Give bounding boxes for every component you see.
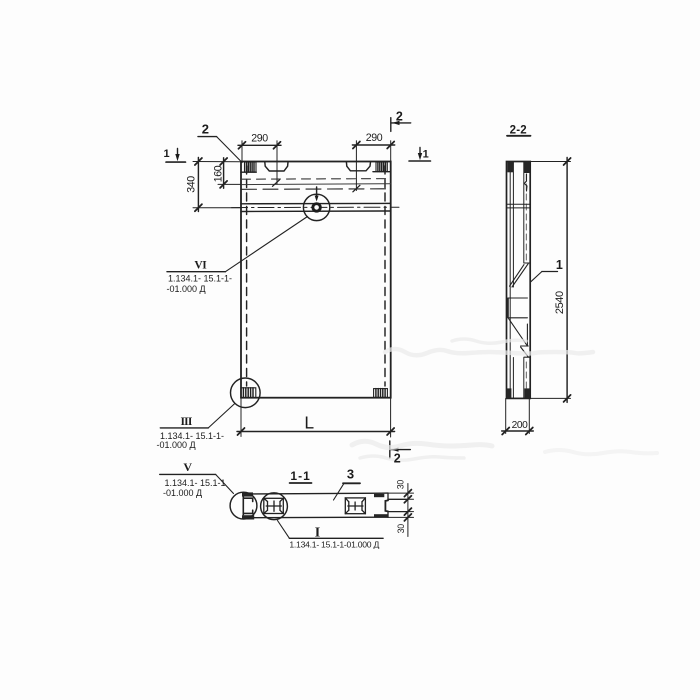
svg-text:2-2: 2-2 (510, 124, 527, 136)
svg-text:-01.000 Д: -01.000 Д (157, 440, 196, 450)
svg-text:290: 290 (251, 133, 268, 145)
svg-text:2540: 2540 (554, 291, 566, 314)
svg-text:30: 30 (395, 480, 405, 490)
svg-text:30: 30 (396, 524, 406, 534)
svg-text:1: 1 (556, 258, 563, 272)
svg-text:1.134.1- 15.1-1: 1.134.1- 15.1-1 (165, 478, 226, 488)
svg-text:1: 1 (423, 148, 429, 160)
svg-text:1.134.1- 15.1-1-01.000 Д: 1.134.1- 15.1-1-01.000 Д (289, 540, 379, 550)
svg-text:340: 340 (186, 176, 198, 193)
svg-text:1-1: 1-1 (290, 469, 310, 483)
svg-text:160: 160 (213, 165, 225, 182)
svg-text:VI: VI (194, 260, 207, 272)
svg-text:-01.000 Д: -01.000 Д (163, 488, 202, 498)
svg-text:2: 2 (396, 110, 403, 124)
svg-text:L: L (304, 413, 314, 433)
svg-text:290: 290 (366, 132, 383, 144)
svg-text:2: 2 (394, 451, 401, 465)
svg-text:III: III (180, 416, 192, 428)
svg-text:I: I (315, 525, 320, 540)
svg-text:1: 1 (163, 148, 169, 160)
svg-text:-01.000 Д: -01.000 Д (167, 284, 206, 294)
svg-text:1.134.1- 15.1-1-: 1.134.1- 15.1-1- (168, 274, 232, 284)
svg-text:3: 3 (347, 467, 354, 482)
svg-text:200: 200 (512, 420, 529, 431)
svg-text:V: V (183, 460, 192, 474)
svg-text:2: 2 (202, 122, 209, 137)
